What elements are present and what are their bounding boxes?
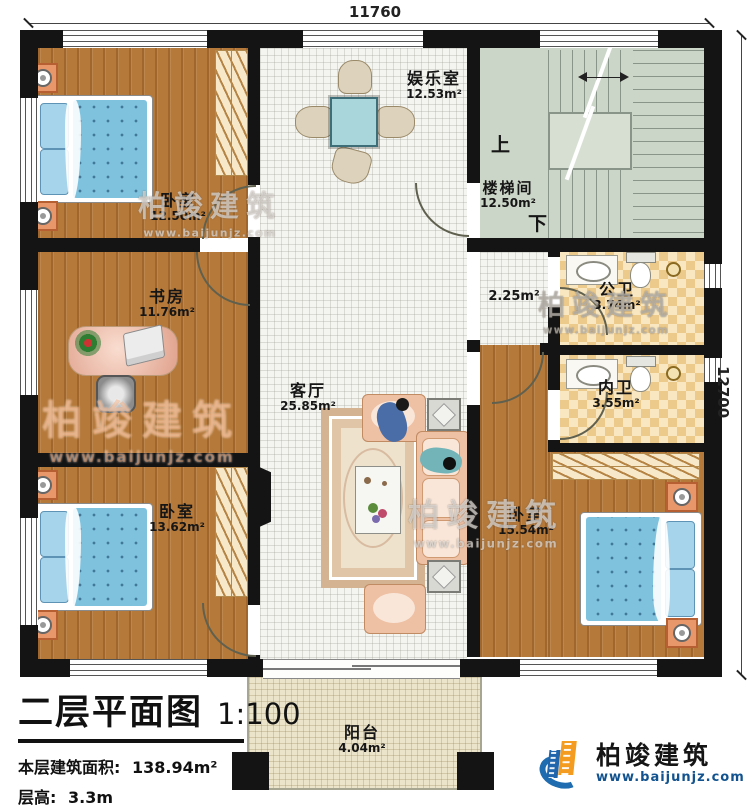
window <box>704 264 722 288</box>
side-table <box>427 560 461 593</box>
stair-direction-line <box>586 77 622 78</box>
wall-inner <box>248 48 260 185</box>
room-label-public-bath: 公卫 3.74m² <box>575 281 659 312</box>
shower-head-icon <box>666 262 681 277</box>
wall-inner <box>548 355 560 390</box>
balcony-pillar <box>457 752 494 790</box>
wall-inner <box>467 48 480 183</box>
wall-inner <box>467 238 704 252</box>
shower-head-icon <box>666 366 681 381</box>
wardrobe <box>215 50 248 176</box>
plan-scale: 1:100 <box>217 697 301 731</box>
room-label-ensuite-bath: 内卫 3.55m² <box>574 379 658 410</box>
wall-inner <box>38 238 200 252</box>
room-label-stairwell: 楼梯间 12.50m² <box>468 180 548 210</box>
window <box>63 30 207 48</box>
title-underline <box>18 739 244 743</box>
room-label-entertainment: 娱乐室 12.53m² <box>392 70 476 101</box>
window <box>540 30 658 48</box>
stair-treads-right <box>633 50 704 238</box>
nightstand <box>666 618 698 648</box>
room-label-bedroom-1: 卧室 12.50m² <box>136 192 220 223</box>
floor-height-line: 层高: 3.3m <box>18 784 301 807</box>
room-label-bedroom-3: 卧室 15.54m² <box>482 506 570 537</box>
dimension-right: 12700 <box>714 366 732 418</box>
dimension-line-right <box>741 36 742 676</box>
wall-inner <box>467 405 480 657</box>
stair-down-label: 下 <box>528 209 547 236</box>
dimension-line-top <box>28 23 710 24</box>
coffee-table <box>355 466 401 534</box>
chair <box>295 106 333 138</box>
wall-inner <box>548 307 560 345</box>
desk-chair <box>96 375 136 413</box>
window <box>20 290 38 395</box>
bed <box>580 512 702 626</box>
window <box>20 518 38 625</box>
room-label-living: 客厅 25.85m² <box>266 382 350 413</box>
pillow <box>665 569 695 617</box>
pillow <box>665 521 695 569</box>
stair-arrow-left <box>578 72 587 82</box>
plan-title: 二层平面图 <box>18 684 203 735</box>
wardrobe <box>552 453 700 480</box>
room-label-corridor: 2.25m² <box>478 290 550 305</box>
person-head <box>396 398 409 411</box>
company-name: 柏竣建筑 <box>596 743 745 769</box>
plant-icon <box>74 329 102 357</box>
floor-plan: 卧室 12.50m² 书房 11.76m² 卧室 13.62m² 娱乐室 12.… <box>0 0 750 807</box>
wall-inner <box>548 443 704 452</box>
window <box>303 30 423 48</box>
room-label-bedroom-2: 卧室 13.62m² <box>135 503 219 534</box>
wall-inner <box>548 345 704 355</box>
room-label-balcony: 阳台 4.04m² <box>320 724 404 755</box>
window <box>520 659 657 677</box>
stair-arrow-right <box>620 72 629 82</box>
game-table <box>330 97 378 147</box>
wall-inner <box>467 340 480 352</box>
logo-building-icon <box>538 738 590 790</box>
lamp-icon <box>673 488 691 506</box>
nightstand <box>666 482 698 512</box>
title-block: 二层平面图 1:100 本层建筑面积: 138.94m² 层高: 3.3m <box>18 684 301 807</box>
window <box>20 98 38 202</box>
chair <box>338 60 372 94</box>
lamp-icon <box>673 624 691 642</box>
window <box>70 659 207 677</box>
bed <box>33 95 153 203</box>
balcony-sliding-door <box>263 659 460 679</box>
chair <box>377 106 415 138</box>
mattress <box>586 518 662 621</box>
wall-right <box>704 30 722 677</box>
stair-up-label: 上 <box>491 130 510 157</box>
dimension-top: 11760 <box>340 3 410 21</box>
wall-inner <box>38 453 248 467</box>
armchair <box>364 584 426 634</box>
person-head <box>443 457 456 470</box>
mattress <box>73 100 147 198</box>
room-label-study: 书房 11.76m² <box>125 288 209 319</box>
side-table <box>427 398 461 431</box>
company-website: www.baijunjz.com <box>596 770 745 785</box>
wall-inner <box>548 252 560 257</box>
floor-area-line: 本层建筑面积: 138.94m² <box>18 754 301 778</box>
company-logo: 柏竣建筑 www.baijunjz.com <box>538 738 745 790</box>
wardrobe <box>215 467 248 597</box>
stair-treads-lower <box>548 170 632 238</box>
